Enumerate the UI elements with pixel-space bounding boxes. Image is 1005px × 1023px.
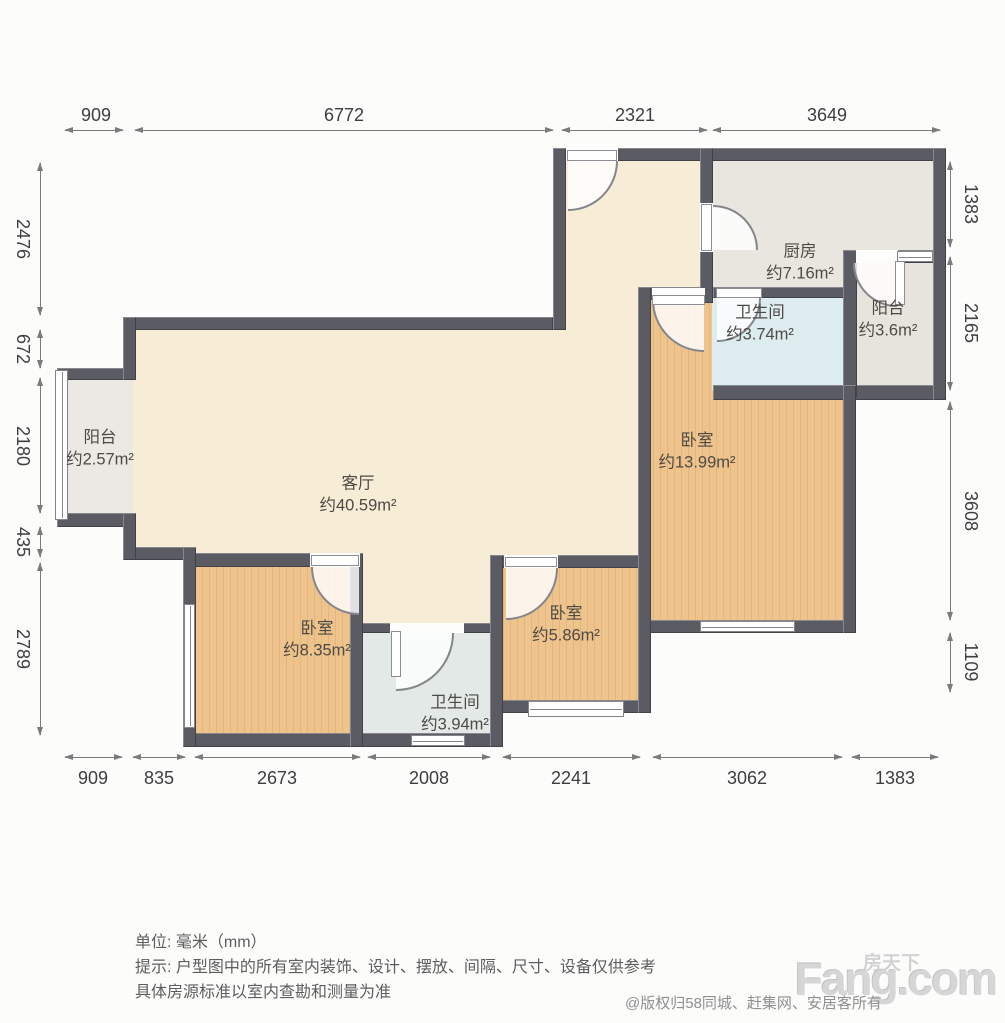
dim-label: 2321	[615, 105, 655, 126]
room-label-kitchen: 厨房 约7.16m²	[766, 241, 834, 286]
room-name: 阳台	[859, 298, 918, 320]
room-label-bath-upper: 卫生间 约3.74m²	[726, 302, 794, 347]
room-floor-bedroom-large	[646, 390, 850, 628]
wall	[638, 287, 651, 713]
dim-line	[65, 757, 122, 758]
footer-notes: 单位: 毫米（mm） 提示: 户型图中的所有室内装饰、设计、摆放、间隔、尺寸、设…	[135, 931, 656, 1005]
dim-line	[503, 757, 640, 758]
room-area: 约2.57m²	[66, 449, 134, 471]
dim-label: 1383	[875, 768, 915, 789]
dim-line	[40, 163, 41, 315]
dim-line	[562, 130, 707, 131]
dim-line	[65, 130, 123, 131]
bedroom-mid-bay-window	[528, 701, 624, 717]
room-name: 阳台	[66, 427, 134, 449]
tip-note-2: 具体房源标准以室内查勘和测量为准	[135, 981, 656, 1006]
bedroom-left-door-leaf	[311, 555, 359, 566]
room-area: 约7.16m²	[766, 263, 834, 285]
dim-label: 1383	[960, 184, 981, 224]
dim-line	[135, 130, 553, 131]
dim-label: 2008	[409, 768, 449, 789]
dim-label: 1109	[960, 643, 981, 682]
dim-line	[653, 757, 842, 758]
dim-label: 835	[144, 768, 174, 789]
wall	[843, 385, 856, 633]
balcony-right-window	[897, 251, 933, 262]
unit-note: 单位: 毫米（mm）	[135, 931, 656, 956]
dim-label: 2241	[551, 768, 591, 789]
wall	[490, 555, 503, 747]
dim-line	[40, 330, 41, 368]
room-label-bedroom-left: 卧室 约8.35m²	[283, 618, 351, 663]
room-area: 约40.59m²	[319, 495, 396, 517]
room-label-living: 客厅 约40.59m²	[319, 473, 396, 518]
bath-lower-window	[411, 735, 465, 746]
wall	[713, 385, 946, 400]
dim-label: 3062	[727, 768, 767, 789]
room-name: 卫生间	[421, 692, 489, 714]
bath-lower-door-leaf	[391, 631, 401, 677]
bath-upper-door-leaf	[716, 288, 762, 298]
room-name: 客厅	[319, 473, 396, 495]
wall	[553, 148, 566, 330]
kitchen-door-leaf	[701, 204, 712, 251]
bedroom-large-window	[700, 621, 795, 632]
room-area: 约5.86m²	[532, 625, 600, 647]
dim-label: 2165	[960, 303, 981, 343]
copyright-text: @版权归58同城、赶集网、安居客所有	[625, 992, 882, 1013]
entry-door-leaf	[567, 150, 617, 161]
dim-label: 909	[81, 105, 111, 126]
wall	[183, 733, 363, 747]
dim-line	[950, 162, 951, 247]
bedroom-left-window	[184, 604, 195, 728]
room-label-bedroom-large: 卧室 约13.99m²	[658, 430, 735, 475]
room-label-bedroom-mid: 卧室 约5.86m²	[532, 603, 600, 648]
dim-line	[852, 757, 938, 758]
bedroom-large-door-leaf	[652, 295, 705, 305]
door-opening	[856, 250, 898, 263]
dim-label: 6772	[324, 105, 364, 126]
dim-label: 3649	[807, 105, 847, 126]
tip-note: 提示: 户型图中的所有室内装饰、设计、摆放、间隔、尺寸、设备仅供参考	[135, 956, 656, 981]
room-label-bath-lower: 卫生间 约3.94m²	[421, 692, 489, 737]
door-opening	[390, 623, 464, 633]
bedroom-mid-door-leaf	[505, 557, 557, 567]
room-name: 卧室	[283, 618, 351, 640]
room-floor-corridor	[357, 555, 497, 633]
wall	[123, 513, 136, 560]
room-area: 约13.99m²	[658, 452, 735, 474]
dim-label: 672	[12, 334, 33, 364]
dim-label: 2476	[12, 219, 33, 259]
dim-line	[133, 757, 185, 758]
wall	[123, 317, 136, 380]
dim-line	[40, 563, 41, 735]
room-area: 约3.94m²	[421, 714, 489, 736]
room-area: 约8.35m²	[283, 640, 351, 662]
room-floor-living	[130, 324, 650, 560]
dim-line	[950, 402, 951, 620]
dim-label: 435	[12, 527, 33, 557]
room-area: 约3.74m²	[726, 324, 794, 346]
dim-line	[40, 378, 41, 513]
dim-label: 2789	[12, 629, 33, 669]
dim-label: 2180	[12, 426, 33, 466]
dim-label: 3608	[960, 491, 981, 531]
dim-line	[40, 527, 41, 557]
dim-label: 909	[78, 768, 108, 789]
wall	[123, 317, 553, 330]
dim-line	[195, 757, 360, 758]
wall	[933, 148, 946, 400]
dim-line	[368, 757, 490, 758]
room-area: 约3.6m²	[859, 320, 918, 342]
room-label-balcony-left: 阳台 约2.57m²	[66, 427, 134, 472]
room-name: 卫生间	[726, 302, 794, 324]
room-name: 厨房	[766, 241, 834, 263]
dim-line	[950, 257, 951, 390]
dim-line	[950, 633, 951, 692]
room-name: 卧室	[658, 430, 735, 452]
room-label-balcony-right: 阳台 约3.6m²	[859, 298, 918, 343]
dim-line	[713, 130, 940, 131]
dim-label: 2673	[257, 768, 297, 789]
floorplan-canvas: 客厅 约40.59m² 卧室 约13.99m² 卧室 约8.35m² 卧室 约5…	[0, 0, 1005, 1023]
room-name: 卧室	[532, 603, 600, 625]
